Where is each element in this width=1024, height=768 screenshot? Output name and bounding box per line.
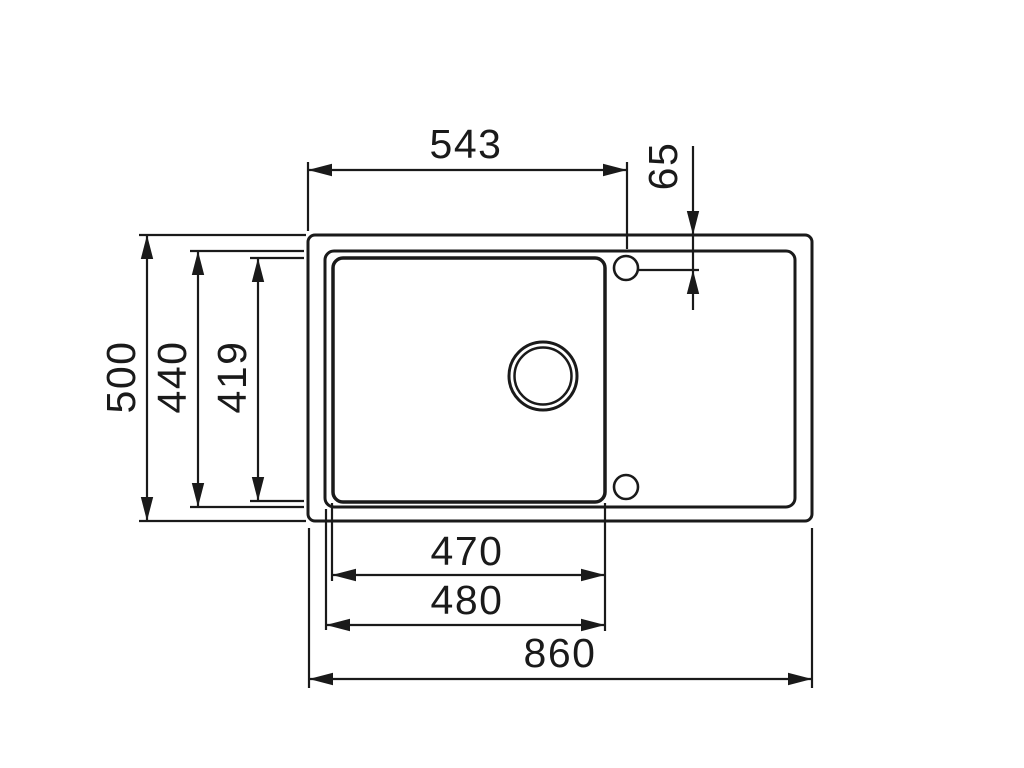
arrowhead (192, 251, 204, 275)
dim-label-bowl-width: 470 (431, 528, 504, 574)
sink-rim-outline (325, 251, 795, 507)
dim-overall-depth: 500 (98, 235, 306, 521)
faucet-hole-bottom (614, 475, 638, 499)
faucet-hole-top (614, 256, 638, 280)
sink-outlines (308, 235, 812, 521)
dim-label-top-width: 543 (430, 121, 503, 167)
dim-faucet-offset: 65 (637, 142, 699, 310)
dim-label-overall-width: 860 (524, 630, 597, 676)
arrowhead (141, 235, 153, 259)
bowl-outline (333, 258, 605, 502)
arrowhead (687, 211, 699, 235)
arrowhead (309, 673, 333, 685)
arrowhead (788, 673, 812, 685)
arrowhead (332, 569, 356, 581)
arrowhead (308, 164, 332, 176)
drain-hole-inner (515, 348, 572, 405)
technical-drawing-page: 543 65 500 440 419 (0, 0, 1024, 768)
sink-dimension-diagram: 543 65 500 440 419 (0, 0, 1024, 768)
sink-outer-outline (308, 235, 812, 521)
dim-label-overall-depth: 500 (98, 341, 144, 414)
arrowhead (252, 258, 264, 282)
dim-top-width: 543 (308, 121, 627, 249)
drain-hole-outer (509, 342, 577, 410)
dim-label-rim-depth: 440 (149, 341, 195, 414)
arrowhead (192, 483, 204, 507)
arrowhead (687, 270, 699, 294)
arrowhead (581, 569, 605, 581)
arrowhead (141, 497, 153, 521)
arrowhead (252, 477, 264, 501)
dim-overall-width: 860 (309, 528, 812, 688)
arrowhead (603, 164, 627, 176)
dim-label-faucet-offset: 65 (640, 142, 686, 191)
dim-label-cutout-width: 480 (431, 577, 504, 623)
arrowhead (326, 619, 350, 631)
dim-label-bowl-depth: 419 (209, 341, 255, 414)
dim-bowl-depth: 419 (209, 258, 304, 501)
